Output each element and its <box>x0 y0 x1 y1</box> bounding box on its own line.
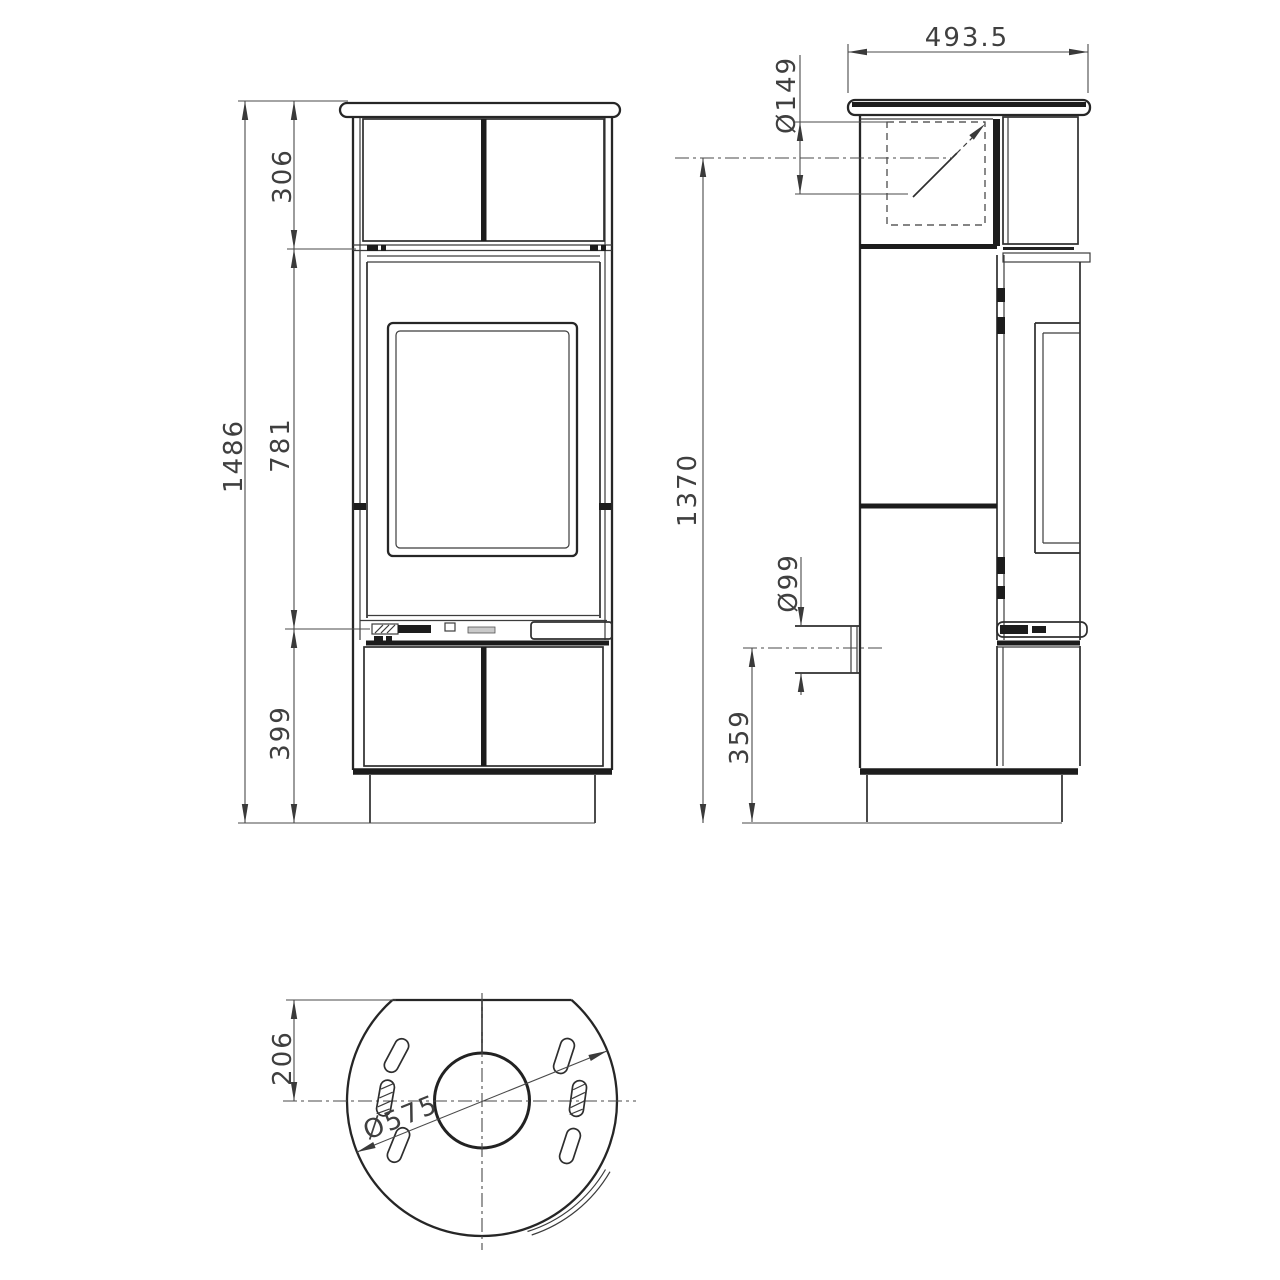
dim-bottom-back-to-center: 206 <box>268 1030 298 1086</box>
dim-arrow <box>291 804 297 823</box>
side-window-outer <box>1035 323 1080 553</box>
side-hinge <box>997 586 1005 599</box>
dim-bottom-body-diameter: Ø575 <box>359 1089 443 1146</box>
side-upper-front-tile <box>1003 117 1078 244</box>
side-flue-damper <box>913 153 957 197</box>
front-strip-lines <box>360 616 607 621</box>
dim-arrow <box>797 175 803 194</box>
dim-front-upper-section: 306 <box>268 148 298 204</box>
bottom-vent-slot <box>382 1036 411 1074</box>
dim-side-top-depth: 493.5 <box>925 23 1009 53</box>
bottom-vent-slot <box>552 1037 576 1076</box>
side-rear-inlet-flange <box>851 626 857 673</box>
dim-arrow <box>588 1048 608 1061</box>
front-shelf-tick <box>381 245 386 251</box>
front-ash-lip <box>531 622 612 639</box>
dim-arrow <box>242 804 248 823</box>
front-door-edges <box>367 262 600 618</box>
side-hinge <box>997 317 1005 334</box>
front-top-plate <box>340 103 620 117</box>
bottom-vent-slot <box>558 1127 582 1166</box>
side-handle-detail <box>1032 626 1046 633</box>
dim-arrow <box>1069 49 1088 55</box>
front-handle-hatch-lines <box>375 625 395 633</box>
front-strip-detail <box>445 623 455 631</box>
front-shelf-tick <box>590 245 598 251</box>
dim-arrow <box>291 610 297 629</box>
side-hinge <box>997 557 1005 574</box>
dim-front-overall-height: 1486 <box>219 419 249 493</box>
dim-side-flue-center-height: 1370 <box>673 453 703 527</box>
front-window-outer <box>388 323 577 556</box>
dim-arrow <box>242 101 248 120</box>
side-rear-inlet-stub <box>795 626 860 673</box>
bottom-dim-206-lines <box>286 1000 396 1101</box>
front-shelf-tick <box>601 245 606 251</box>
dim-arrow <box>848 49 867 55</box>
front-upper-tile-joint <box>481 119 487 241</box>
front-handle <box>398 625 431 633</box>
front-strip-detail <box>468 627 495 633</box>
side-window-inner <box>1043 333 1080 543</box>
front-view-dimensions: 1486 306 781 399 <box>219 101 595 823</box>
dim-arrow <box>700 804 706 823</box>
dim-arrow <box>291 230 297 249</box>
dim-arrow <box>798 673 804 692</box>
side-upper-divider <box>993 119 1000 246</box>
side-view-dimensions: 493.5 Ø149 1370 Ø99 359 <box>673 23 1088 823</box>
side-plinth <box>867 775 1062 822</box>
front-shelf-tick <box>367 245 378 251</box>
dim-front-door-section: 781 <box>266 417 296 473</box>
dim-arrow <box>291 101 297 120</box>
technical-drawing-page: 1486 306 781 399 <box>0 0 1280 1280</box>
side-shelf <box>1003 253 1090 262</box>
dim-arrow <box>291 629 297 648</box>
side-lower-tile-inner <box>997 647 1080 766</box>
front-strip-tick <box>374 636 383 641</box>
dim-arrow <box>291 249 297 268</box>
side-dim-flue-lines <box>795 55 908 194</box>
dim-arrow <box>749 648 755 667</box>
dim-front-lower-section: 399 <box>266 705 296 761</box>
side-handle-detail <box>1000 625 1028 634</box>
side-dim-359-lines <box>742 648 1062 823</box>
dim-arrow <box>749 803 755 822</box>
bottom-vent-slot-hatched <box>569 1080 588 1118</box>
dim-arrow <box>291 1000 297 1019</box>
front-lower-tile-joint <box>481 647 487 766</box>
front-plinth <box>370 775 595 823</box>
front-window-inner <box>396 331 569 548</box>
dim-side-rear-inlet-height: 359 <box>725 709 755 765</box>
front-view <box>340 103 620 823</box>
front-side-joint-mark <box>599 503 611 510</box>
front-side-joint-mark <box>354 503 366 510</box>
bottom-view-dimensions: 206 Ø575 <box>268 1000 608 1155</box>
technical-drawing-canvas: 1486 306 781 399 <box>0 0 1280 1280</box>
dim-arrow <box>700 158 706 177</box>
dim-side-flue-diameter: Ø149 <box>772 56 802 134</box>
dim-side-rear-inlet-diameter: Ø99 <box>774 553 804 613</box>
side-lower-tile-edges <box>997 646 1080 766</box>
front-shelf-lines <box>353 245 612 262</box>
side-hinge <box>997 288 1005 302</box>
bottom-view <box>283 993 636 1250</box>
front-strip-tick <box>386 636 392 641</box>
